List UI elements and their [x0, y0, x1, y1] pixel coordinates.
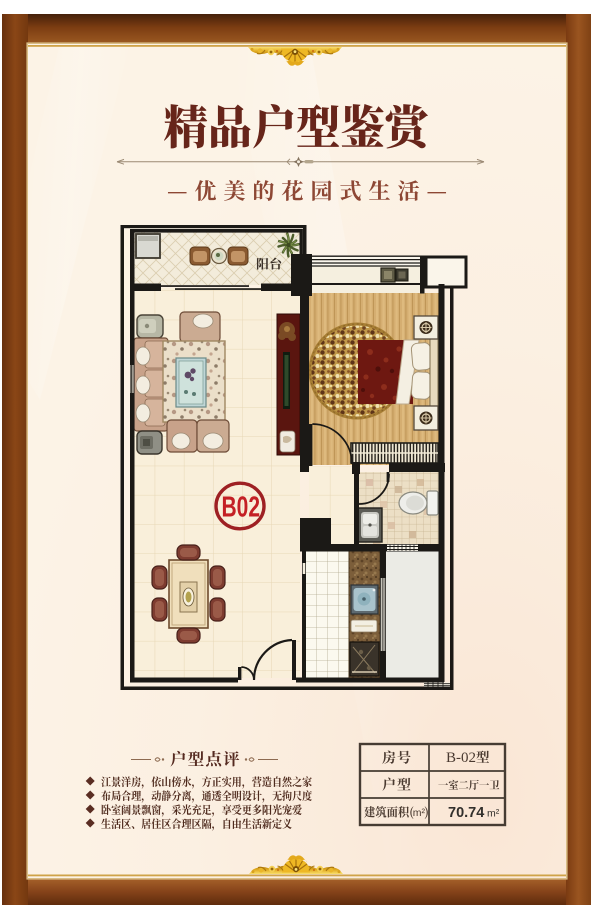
svg-text:70.74: 70.74 [448, 805, 484, 821]
svg-text:m²: m² [487, 808, 500, 820]
svg-text:m²: m² [413, 807, 426, 819]
svg-text:B-02: B-02 [446, 750, 476, 766]
svg-text:B02: B02 [222, 492, 261, 524]
